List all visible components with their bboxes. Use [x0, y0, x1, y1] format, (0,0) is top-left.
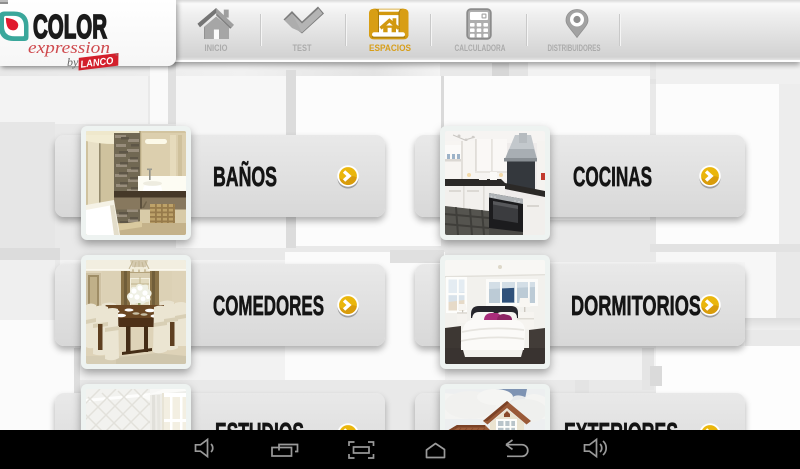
svg-text:COLOR: COLOR [33, 8, 107, 42]
svg-text:CALCULADORA: CALCULADORA [455, 43, 506, 54]
svg-text:COCINAS: COCINAS [573, 160, 652, 192]
svg-text:BAÑOS: BAÑOS [213, 160, 277, 192]
svg-text:DISTRIBUIDORES: DISTRIBUIDORES [548, 43, 601, 54]
svg-text:COMEDORES: COMEDORES [213, 289, 324, 321]
svg-text:®: ® [115, 52, 119, 57]
svg-text:DORMITORIOS: DORMITORIOS [571, 289, 701, 321]
svg-text:TEST: TEST [293, 43, 312, 54]
svg-text:by: by [67, 55, 79, 69]
svg-text:INICIO: INICIO [205, 43, 228, 54]
svg-text:ESPACIOS: ESPACIOS [369, 43, 412, 54]
